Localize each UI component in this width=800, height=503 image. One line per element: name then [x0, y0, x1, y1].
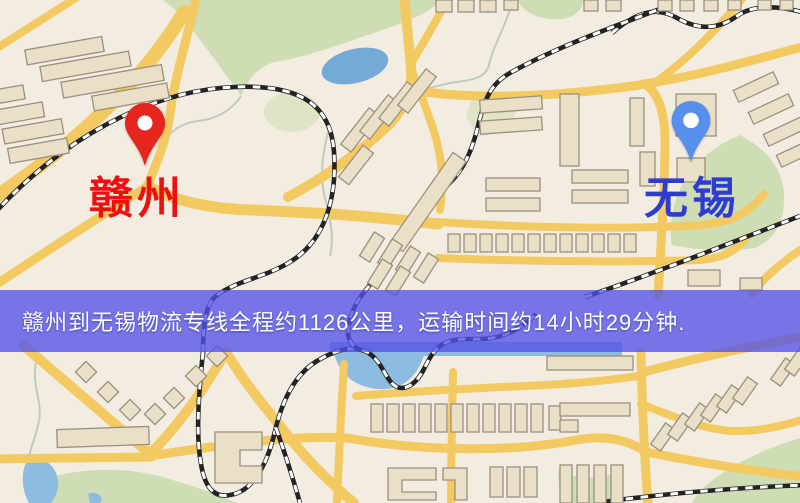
map-canvas — [0, 0, 800, 503]
route-info-text: 赣州到无锡物流专线全程约1126公里，运输时间约14小时29分钟. — [0, 305, 685, 337]
destination-pin-icon — [668, 100, 712, 166]
map-screenshot: 赣州 无锡 赣州到无锡物流专线全程约1126公里，运输时间约14小时29分钟. — [0, 0, 800, 503]
origin-city-label: 赣州 — [89, 177, 185, 221]
destination-city-label: 无锡 — [644, 177, 740, 221]
origin-pin-shape — [125, 103, 165, 166]
destination-pin-shape — [672, 101, 711, 162]
route-info-banner: 赣州到无锡物流专线全程约1126公里，运输时间约14小时29分钟. — [0, 290, 800, 352]
building-row-topedge — [436, 0, 793, 12]
origin-pin-icon — [123, 102, 167, 168]
